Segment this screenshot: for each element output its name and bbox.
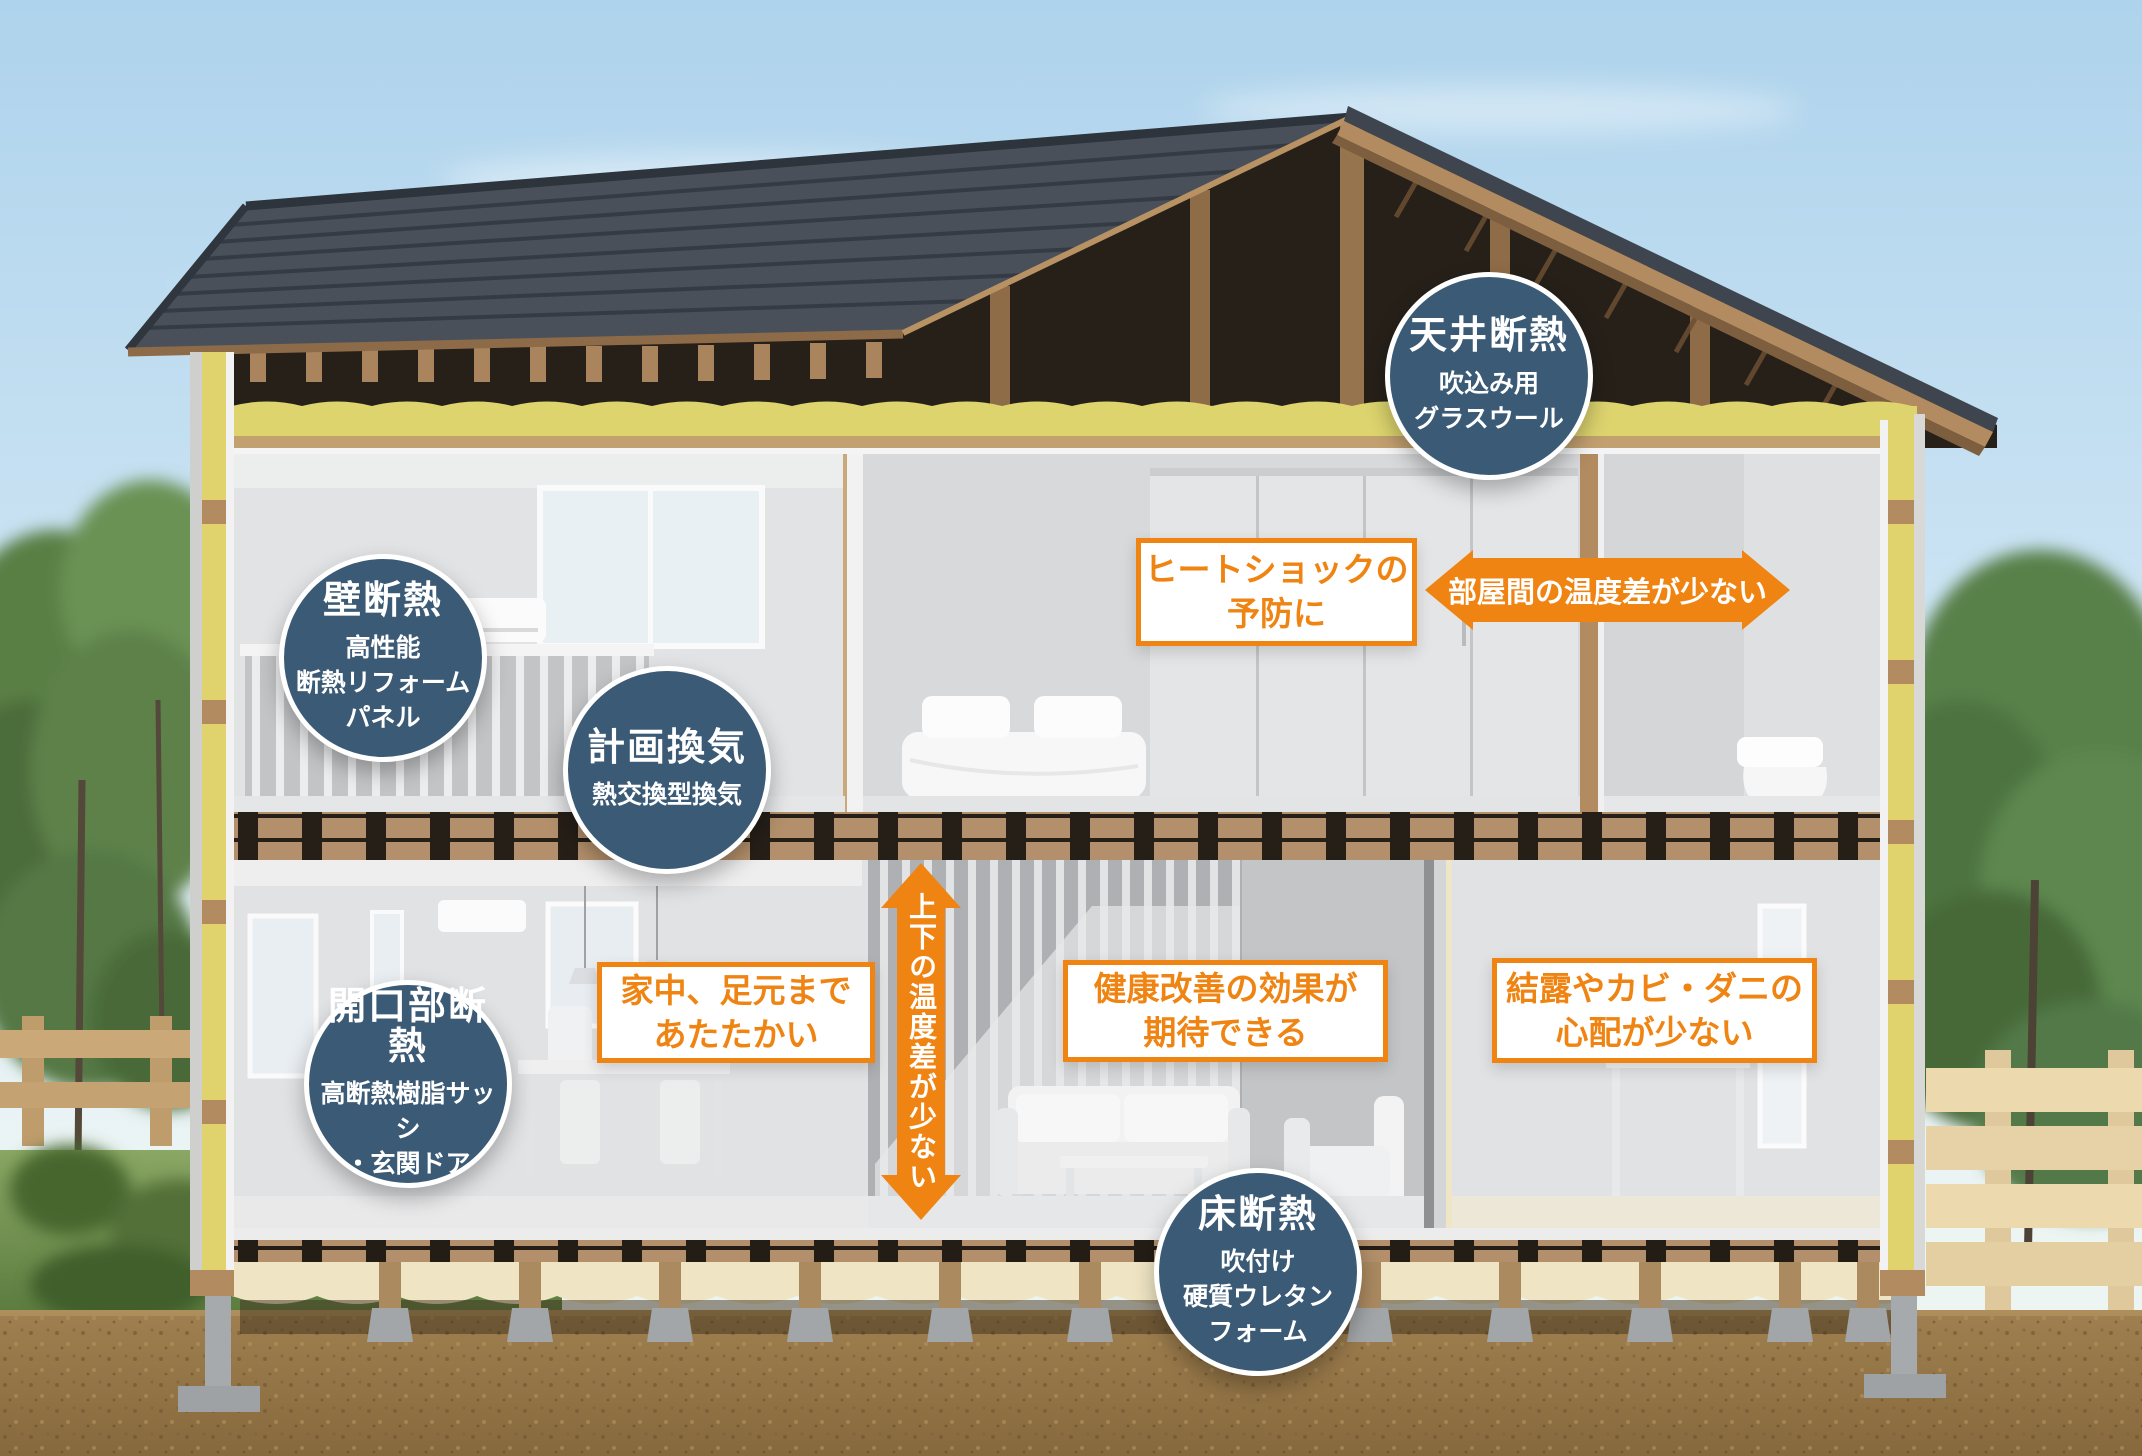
feature-circle-planned-ventilation: 計画換気 熱交換型換気 — [563, 666, 771, 874]
air-conditioner — [438, 900, 526, 932]
benefit-text: 健康改善の効果が — [1094, 967, 1358, 1011]
feature-circle-floor-insulation: 床断熱 吹付け 硬質ウレタン フォーム — [1154, 1168, 1362, 1376]
circle-line: ・玄関ドア — [345, 1146, 470, 1181]
benefit-box-condensation: 結露やカビ・ダニの 心配が少ない — [1492, 958, 1817, 1063]
circle-title: 床断熱 — [1198, 1195, 1318, 1235]
circle-line: 硬質ウレタン — [1183, 1279, 1333, 1314]
circle-title: 壁断熱 — [323, 581, 443, 621]
second-floor — [232, 454, 1917, 812]
circle-line: フォーム — [1208, 1314, 1307, 1349]
benefit-text: 家中、足元まで — [621, 969, 852, 1013]
second-floor-joists — [232, 812, 1917, 860]
circle-line: 吹付け — [1220, 1244, 1295, 1279]
benefit-text: あたたかい — [654, 1013, 819, 1057]
ceiling-insulation-layer — [232, 402, 1917, 455]
temp-diff-between-rooms-arrow: 部屋間の温度差が少ない — [1425, 550, 1790, 630]
benefit-text: 結露やカビ・ダニの — [1506, 967, 1803, 1011]
circle-line: 高断熱樹脂サッシ — [309, 1076, 507, 1146]
arrow-label: 上下の温度差が少ない — [901, 892, 941, 1192]
circle-line: 吹込み用 — [1439, 366, 1539, 401]
circle-title: 開口部断熱 — [309, 987, 507, 1067]
benefit-text: 心配が少ない — [1556, 1011, 1754, 1055]
feature-circle-opening-insulation: 開口部断熱 高断熱樹脂サッシ ・玄関ドア — [304, 980, 512, 1188]
benefit-text: 期待できる — [1143, 1011, 1307, 1055]
underfloor-insulation — [232, 1262, 1917, 1304]
circle-line: 熱交換型換気 — [592, 777, 742, 812]
underfloor-structure — [232, 1228, 1917, 1304]
feature-circle-ceiling-insulation: 天井断熱 吹込み用 グラスウール — [1385, 272, 1593, 480]
arrow-label: 部屋間の温度差が少ない — [1448, 569, 1767, 611]
circle-line: パネル — [345, 700, 420, 735]
benefit-box-warm-feet: 家中、足元まで あたたかい — [597, 962, 875, 1063]
circle-line: グラスウール — [1414, 401, 1564, 436]
benefit-box-health: 健康改善の効果が 期待できる — [1063, 960, 1388, 1062]
benefit-text: 予防に — [1227, 592, 1326, 636]
circle-title: 天井断熱 — [1409, 316, 1569, 356]
wall-insulation-left — [190, 352, 234, 1296]
insulated-house-cross-section-infographic: 部屋間の温度差が少ない 上下の温度差が少ない ヒートショックの 予防に 家中、足… — [0, 0, 2142, 1456]
window — [250, 916, 316, 1076]
circle-line: 断熱リフォーム — [296, 665, 470, 700]
wall-insulation-right — [1880, 414, 1925, 1296]
feature-circle-wall-insulation: 壁断熱 高性能 断熱リフォーム パネル — [279, 554, 487, 762]
circle-title: 計画換気 — [587, 728, 747, 768]
benefit-box-heat-shock: ヒートショックの 予防に — [1136, 538, 1417, 646]
circle-line: 高性能 — [345, 630, 420, 665]
benefit-text: ヒートショックの — [1145, 548, 1409, 592]
